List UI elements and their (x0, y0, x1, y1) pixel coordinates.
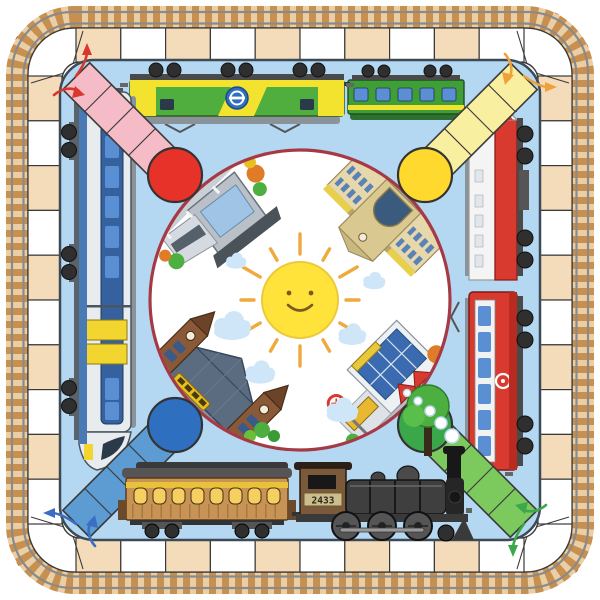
ring-cells-top (76, 28, 524, 62)
emu-door (83, 344, 127, 364)
board-svg: 2433 (0, 0, 600, 600)
ring-cells-left (28, 76, 62, 524)
emu-door (83, 320, 127, 340)
train-game-board: 2433 (0, 0, 600, 600)
start-circle-red[interactable] (148, 148, 202, 202)
start-circle-yellow[interactable] (398, 148, 452, 202)
chimney (447, 450, 461, 480)
ring-cells-bottom (76, 538, 524, 572)
start-circle-blue[interactable] (148, 398, 202, 452)
coupling-rod (340, 528, 424, 532)
ring-cells-right (538, 76, 572, 524)
steam-loco-number: 2433 (312, 496, 335, 507)
